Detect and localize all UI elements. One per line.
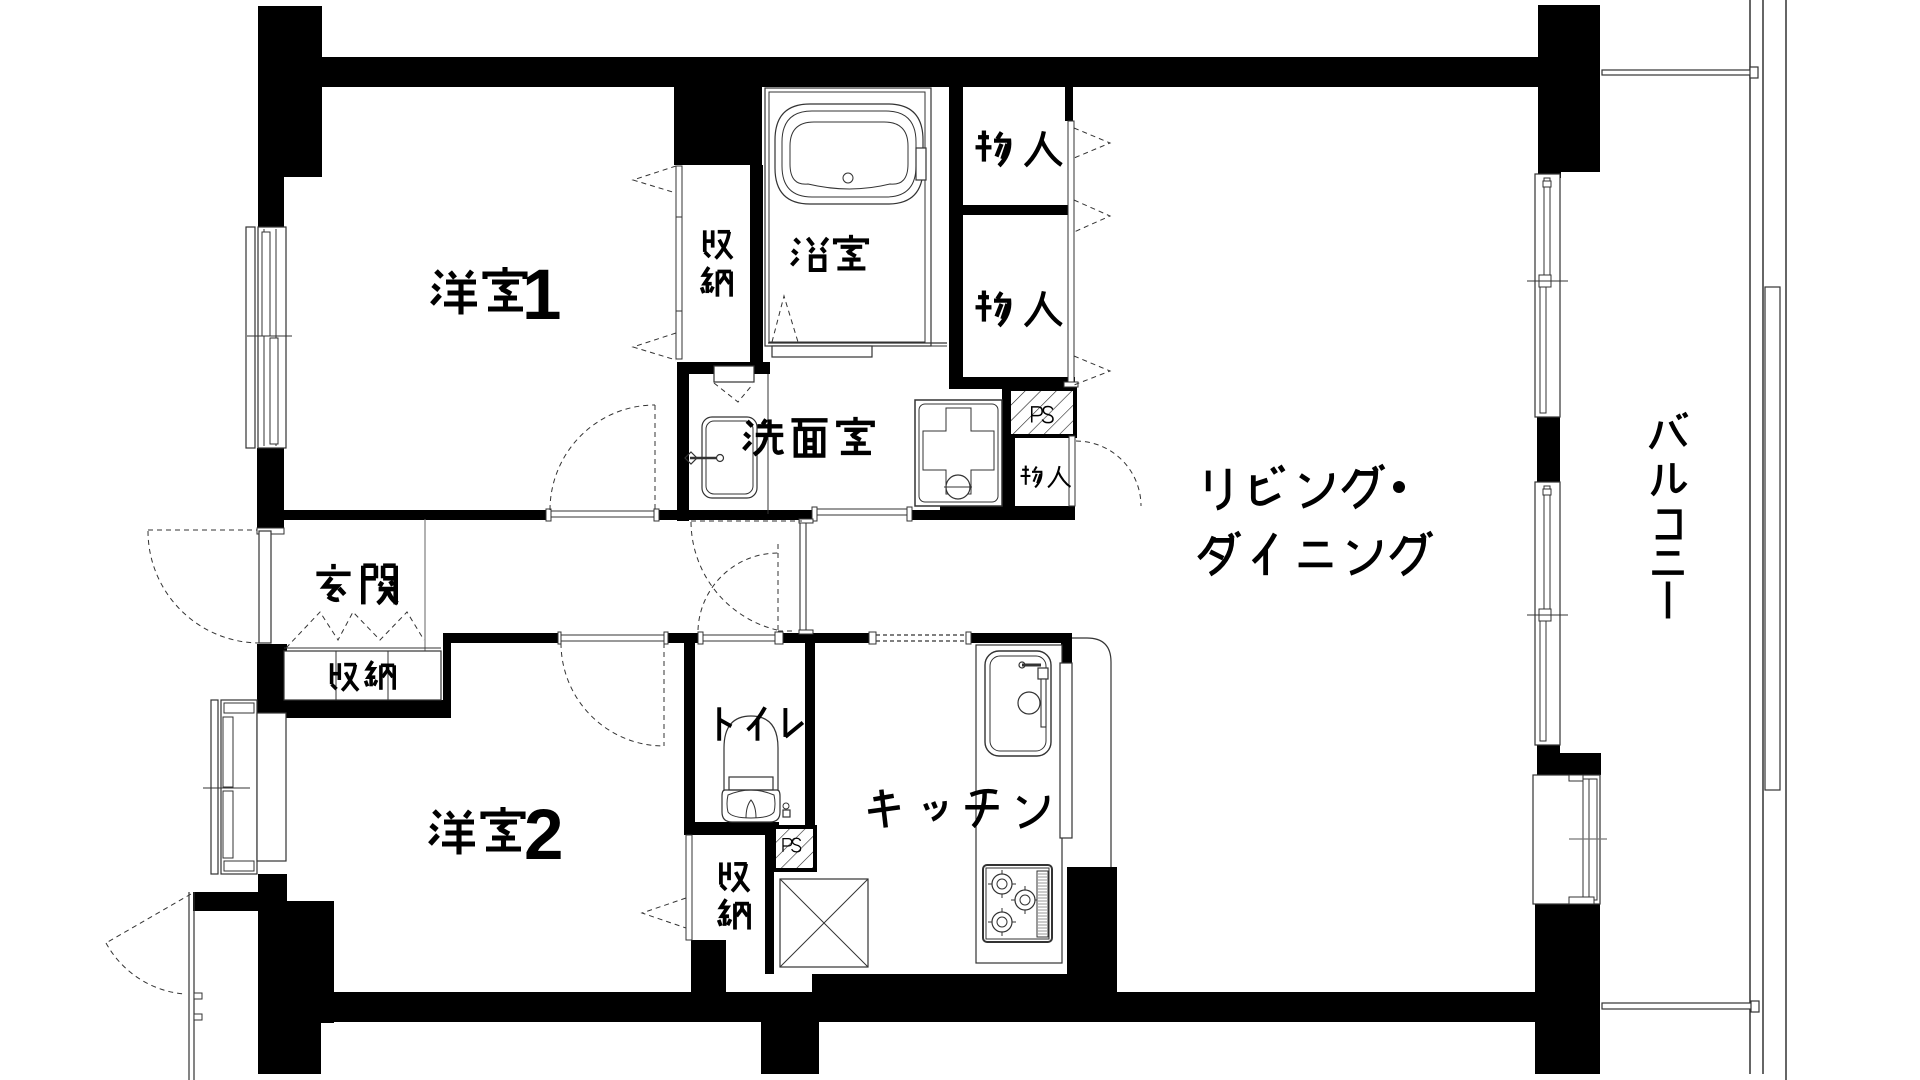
- svg-text:1: 1: [522, 256, 562, 335]
- svg-text:2: 2: [524, 796, 564, 875]
